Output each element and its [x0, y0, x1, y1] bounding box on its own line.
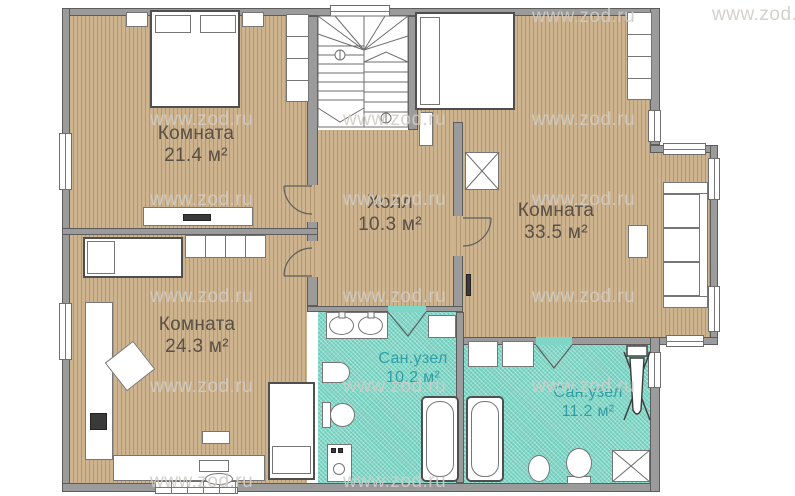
bathtub-inner — [471, 401, 499, 477]
room-name: Сан.узел — [343, 350, 483, 369]
room-area: 10.3 м² — [330, 214, 450, 236]
watermark: www.zod.ru — [343, 286, 446, 308]
pillow — [420, 17, 440, 105]
sofa-armrest — [663, 296, 708, 308]
watermark: www.zod.ru — [343, 471, 446, 493]
shower-cabin — [612, 450, 650, 482]
window-room33-right — [648, 110, 661, 142]
cabinet — [428, 315, 456, 338]
pillow — [200, 15, 236, 33]
watermark: www.zod.ru — [343, 189, 446, 211]
watermark: www.zod.ru — [532, 6, 635, 28]
watermark: www.zod.ru — [343, 376, 446, 398]
room-name: Комната — [117, 314, 277, 336]
floor-plan: Комната 21.4 м² Холл 10.3 м² Комната 33.… — [0, 0, 795, 496]
door-opening-room21 — [307, 185, 318, 222]
room-area: 33.5 м² — [476, 222, 636, 244]
door-opening-room24 — [307, 241, 318, 277]
washer-control — [331, 448, 336, 453]
toilet — [330, 403, 355, 427]
nightstand — [126, 12, 148, 27]
vent-shaft — [465, 152, 499, 190]
wardrobe — [185, 235, 266, 258]
watermark: www.zod.ru — [532, 189, 635, 211]
sofa-cushion — [663, 194, 700, 228]
door-opening-room33 — [453, 216, 463, 256]
bathtub-inner — [426, 401, 454, 477]
window-room21-left — [59, 133, 72, 190]
door-opening-bath11 — [536, 337, 572, 345]
wall-outer-left — [62, 8, 70, 492]
window-bay-bottom — [666, 335, 704, 347]
pillow — [87, 241, 115, 274]
sink — [329, 316, 354, 335]
wardrobe — [286, 14, 309, 102]
nightstand — [242, 12, 264, 27]
watermark: www.zod.ru — [150, 471, 253, 493]
watermark: www.zod.ru — [532, 286, 635, 308]
tv-icon — [90, 413, 107, 430]
sofa-cushion — [663, 228, 700, 262]
washer-control — [338, 448, 343, 453]
room-area: 24.3 м² — [117, 336, 277, 358]
watermark: www.zod.ru — [343, 109, 446, 131]
watermark: www.zod.ru — [150, 189, 253, 211]
bidet — [528, 455, 550, 482]
toilet — [566, 448, 592, 478]
window-bay-right-1 — [708, 158, 720, 200]
watermark: www.zod.ru — [712, 4, 795, 26]
sink — [358, 316, 383, 335]
cabinet — [502, 341, 534, 367]
coffee-table — [202, 431, 230, 444]
wall-room21-room24 — [62, 228, 318, 235]
watermark: www.zod.ru — [150, 376, 253, 398]
tv-icon — [183, 214, 211, 221]
watermark: www.zod.ru — [532, 376, 635, 398]
watermark: www.zod.ru — [532, 109, 635, 131]
radiator — [466, 274, 471, 296]
pillow — [272, 446, 311, 474]
desk — [85, 302, 113, 460]
sofa-cushion — [663, 262, 700, 296]
window-room24-left — [59, 303, 72, 360]
label-room-24: Комната 24.3 м² — [117, 314, 277, 359]
room-area: 21.4 м² — [116, 145, 276, 167]
pillow — [155, 15, 191, 33]
window-bay-top — [663, 143, 706, 155]
room-area: 11.2 м² — [518, 403, 658, 422]
watermark: www.zod.ru — [150, 286, 253, 308]
window-stairs-top — [330, 5, 390, 18]
sofa-armrest — [663, 182, 708, 194]
window-bay-right-2 — [708, 286, 720, 332]
window-bath11-right — [648, 352, 661, 388]
watermark: www.zod.ru — [150, 109, 253, 131]
